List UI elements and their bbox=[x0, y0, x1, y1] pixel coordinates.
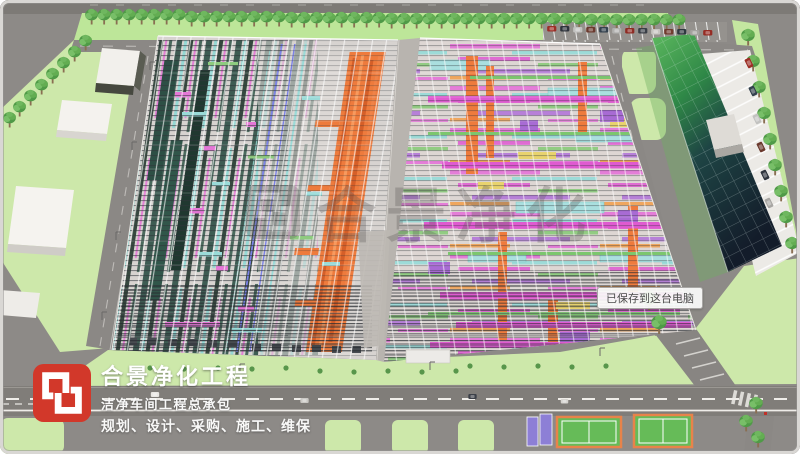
company-tagline: 洁净车间工程总承包 bbox=[101, 394, 311, 413]
company-services: 规划、设计、采购、施工、维保 bbox=[101, 416, 311, 436]
save-notification-tooltip: 已保存到这台电脑 bbox=[597, 287, 703, 309]
brand-text-block: 合景净化工程 洁净车间工程总承包 规划、设计、采购、施工、维保 bbox=[101, 364, 311, 436]
left-cleanroom-factory bbox=[108, 36, 403, 360]
hejing-logo-icon bbox=[33, 364, 91, 422]
bim-rendering-viewport: 合景净化 已保存到这台电脑 合景净化工程 洁净车间工程总承包 规划、设计、采购、… bbox=[0, 0, 800, 454]
company-branding: 合景净化工程 洁净车间工程总承包 规划、设计、采购、施工、维保 bbox=[33, 364, 311, 436]
company-name: 合景净化工程 bbox=[101, 364, 311, 390]
